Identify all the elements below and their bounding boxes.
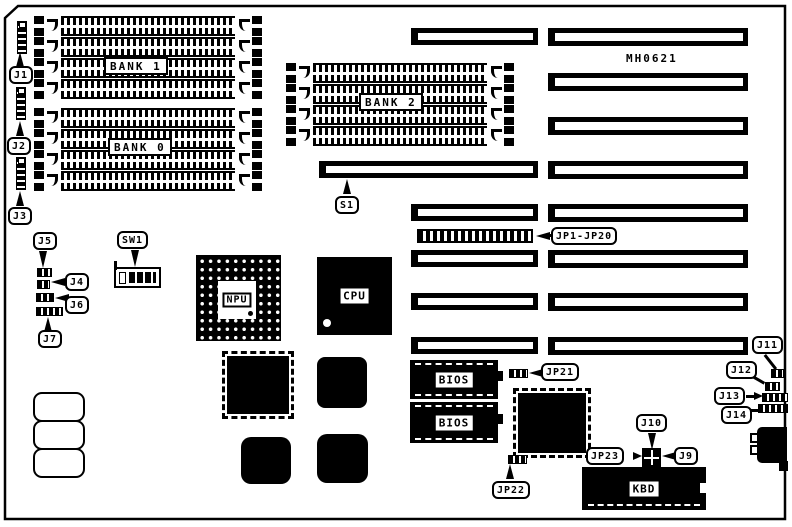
board-model-label: MH0621 [626,52,678,65]
isa-slot-7-long [548,293,748,311]
socket-pad [34,79,44,99]
callout-tail-j4 [51,278,65,286]
socket-pad [34,150,44,170]
bank1-label: BANK 1 [104,57,168,75]
sw1-switch-open [119,272,126,284]
simm-socket-row-bank-2 [286,126,514,146]
j3-header [16,157,26,190]
callout-tail-j2 [16,121,24,136]
bank2-label: BANK 2 [359,93,423,111]
j5-jumper [37,268,52,277]
isa-slot-7-ext [411,293,538,310]
callout-j9: J9 [674,447,698,465]
socket-latch-icon [44,79,60,99]
callout-j10: J10 [636,414,667,432]
j6-jumper [36,293,54,302]
socket-latch-icon [236,171,252,191]
j12-jumper [765,382,780,391]
spare-socket-group [33,394,85,478]
socket-pad [34,108,44,128]
simm-socket-row-bank-1 [34,79,262,99]
socket-latch-icon [236,129,252,149]
callout-j2: J2 [7,137,31,155]
socket-pin-strip [61,79,235,99]
socket-pad [252,58,262,78]
socket-latch-icon [296,63,312,83]
cpu-chip: CPU [317,257,392,335]
jp1-jp20-jumper-bank [417,229,533,243]
callout-j3: J3 [8,207,32,225]
bios2-label: BIOS [436,415,473,430]
motherboard-diagram: MH0621 S1 BANK 1 BANK 0 BANK 2 J1 J2 J3 … [0,0,792,527]
socket-pad [34,16,44,36]
keyboard-connector [757,427,787,463]
cpu-label: CPU [340,289,369,304]
isa-slot-6-ext [411,250,538,267]
j7-jumper [36,307,63,316]
socket-latch-icon [44,108,60,128]
simm-socket-row-bank-0 [34,108,262,128]
support-chip-3 [317,434,368,483]
callout-j11: J11 [752,336,783,354]
isa-slot-1-ext [411,28,538,45]
j11-jumper [771,369,784,378]
npu-socket: NPU [196,255,281,341]
socket-latch-icon [236,108,252,128]
callout-j14: J14 [721,406,752,424]
spare-socket [33,448,85,478]
sw1-switch-bank [129,272,156,283]
callout-j4: J4 [65,273,89,291]
npu-label: NPU [222,293,251,308]
socket-pin-strip [313,126,487,146]
isa-slot-6-long [548,250,748,268]
callout-jp23: JP23 [586,447,624,465]
bios-chip-1: BIOS [410,360,498,399]
socket-pad [34,129,44,149]
socket-pin-strip [61,108,235,128]
simm-socket-row-bank-2 [286,63,514,83]
socket-pad [252,171,262,191]
socket-pad [252,150,262,170]
socket-latch-icon [236,79,252,99]
keyboard-connector-base [779,461,788,471]
callout-tail-j5 [39,251,47,268]
callout-j1: J1 [9,66,33,84]
callout-tail-j1 [16,52,24,67]
sw1-dip-switch [114,267,161,288]
socket-pad [286,84,296,104]
socket-pad [252,79,262,99]
isa-slot-1-long [548,28,748,46]
socket-pad [34,37,44,57]
socket-pin-strip [61,171,235,191]
bios1-tab [497,371,503,381]
callout-tail-jp22 [506,464,514,479]
kbd-controller-chip: KBD [582,467,706,510]
keyboard-connector-pin [750,433,759,443]
callout-tail-jp23 [633,452,642,460]
isa-slot-5-long [548,204,748,222]
socket-pad [252,129,262,149]
socket-latch-icon [44,16,60,36]
socket-pin-strip [313,63,487,83]
socket-pad [286,63,296,83]
j2-header [16,87,26,120]
callout-jp1-jp20: JP1-JP20 [551,227,617,245]
socket-pad [252,37,262,57]
jp22-jumper [508,455,527,464]
socket-pad [34,58,44,78]
callout-tail-j13 [754,392,763,400]
simm-socket-row-bank-1 [34,16,262,36]
spare-socket [33,420,85,450]
socket-pad [34,171,44,191]
callout-sw1: SW1 [117,231,148,249]
keyboard-connector-pin [750,445,759,455]
bios2-tab [497,414,503,424]
socket-latch-icon [236,37,252,57]
socket-latch-icon [236,150,252,170]
spare-socket [33,392,85,422]
socket-latch-icon [488,84,504,104]
callout-tail-s1 [343,179,351,194]
bank0-label: BANK 0 [108,138,172,156]
callout-j6: J6 [65,296,89,314]
socket-pad [504,105,514,125]
socket-latch-icon [296,84,312,104]
socket-latch-icon [44,171,60,191]
isa-slot-5-ext [411,204,538,221]
npu-socket-center: NPU [218,281,256,319]
socket-latch-icon [488,126,504,146]
socket-latch-icon [44,129,60,149]
socket-latch-icon [488,105,504,125]
chipset-qfp-2 [518,393,586,453]
isa-slot-3-long [548,117,748,135]
callout-s1: S1 [335,196,359,214]
socket-latch-icon [488,63,504,83]
j13-jumper [762,393,788,402]
socket-pad [286,105,296,125]
socket-latch-icon [236,58,252,78]
kbd-chip-notch [700,483,708,493]
callout-tail-j10 [648,433,656,450]
callout-jp21: JP21 [541,363,579,381]
socket-pin-strip [61,16,235,36]
isa-slot-2-long [548,73,748,91]
simm-socket-row-bank-0 [34,171,262,191]
socket-latch-icon [236,16,252,36]
isa-slot-8-ext [411,337,538,354]
support-chip-2 [241,437,291,484]
socket-latch-icon [44,58,60,78]
callout-j12: J12 [726,361,757,379]
simm-socket-row-bank-1 [34,37,262,57]
socket-latch-icon [44,37,60,57]
j1-header [17,21,27,54]
bios1-label: BIOS [436,372,473,387]
socket-latch-icon [296,105,312,125]
socket-latch-icon [44,150,60,170]
sw1-pin1-flag-icon [114,261,117,270]
callout-tail-j3 [16,191,24,206]
socket-pad [286,126,296,146]
j14-jumper [758,404,788,413]
jp21-jumper [509,369,528,378]
callout-tail-sw1 [131,250,139,267]
callout-line-j14 [751,409,760,412]
callout-j13: J13 [714,387,745,405]
support-chip-1 [317,357,367,408]
j4-jumper [37,280,50,289]
chipset-qfp-1 [227,356,289,414]
isa-slot-4-long [548,161,748,179]
socket-pad [252,16,262,36]
socket-pad [504,126,514,146]
callout-j5: J5 [33,232,57,250]
socket-pad [504,84,514,104]
callout-j7: J7 [38,330,62,348]
kbd-label: KBD [630,481,659,496]
callout-jp22: JP22 [492,481,530,499]
bios-chip-2: BIOS [410,402,498,443]
isa-slot-8-long [548,337,748,355]
s1-expansion-slot [319,161,538,178]
socket-pad [504,63,514,83]
socket-pad [252,108,262,128]
j10-jumper-block [642,448,661,467]
socket-latch-icon [296,126,312,146]
socket-pin-strip [61,37,235,57]
